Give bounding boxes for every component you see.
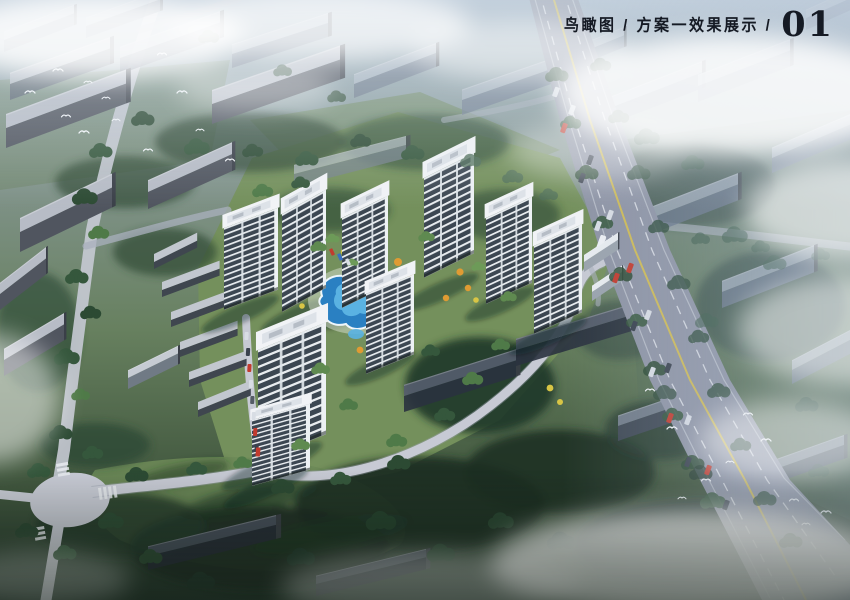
car [255,447,260,456]
view-title-text: 鸟瞰图 / 方案一效果展示 / [564,13,772,35]
aerial-rendering-image [0,0,850,600]
rendering-page: 鸟瞰图 / 方案一效果展示 / 01 [0,0,850,600]
page-header: 鸟瞰图 / 方案一效果展示 / 01 [564,7,834,42]
bottom-vignette [0,470,850,600]
page-number: 01 [781,7,834,42]
